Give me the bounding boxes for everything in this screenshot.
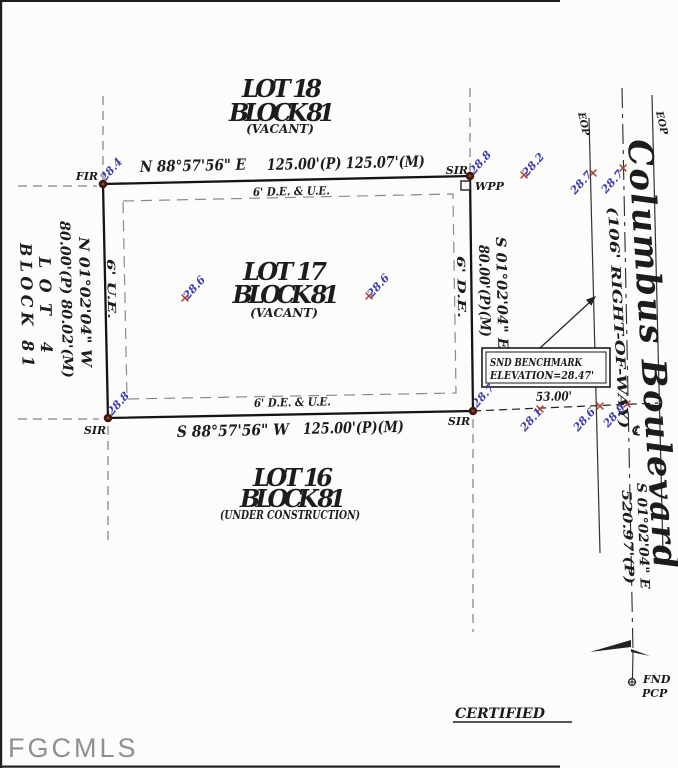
east-bearing: S 01°02'04" E	[492, 237, 510, 350]
monument-label-sir-ne: SIR	[446, 164, 468, 177]
east-distance: 80.00'(P)(M)	[475, 245, 493, 337]
lot4-block: BLOCK 81	[16, 242, 38, 367]
monument-label-fnd: FND	[642, 673, 671, 686]
certified-label: CERTIFIED	[455, 706, 545, 722]
station-tick-left	[590, 640, 631, 652]
west-boundary-label: N 01°02'04" W 80.00'(P) 80.02'(M)	[56, 221, 94, 378]
lot4-title: LOT 4	[35, 256, 56, 353]
plat-svg: SND BENCHMARK ELEVATION=28.47' LOT 18 BL…	[0, 0, 678, 768]
benchmark-title: SND BENCHMARK	[490, 355, 583, 369]
lot4-label: LOT 4 BLOCK 81	[16, 242, 56, 367]
lot18-label: LOT 18 BLOCK 81 (VACANT)	[228, 74, 335, 136]
lot17-status: (VACANT)	[250, 306, 318, 320]
monument-label-fir: FIR	[75, 170, 98, 183]
fnd-pcp-monument	[628, 678, 636, 686]
easement-label-left: 6' U.E.	[104, 259, 118, 320]
edge-of-pavement-left-line	[589, 118, 600, 553]
east-boundary-label: S 01°02'04" E 80.00'(P)(M)	[475, 237, 510, 350]
spot-elevation: 28.6	[570, 405, 598, 435]
easement-label-top: 6' D.E. & U.E.	[253, 183, 330, 199]
west-distance: 80.00'(P) 80.02'(M)	[56, 221, 75, 378]
benchmark-elevation: ELEVATION=28.47'	[489, 368, 594, 382]
eop-left-label: EOP	[575, 110, 591, 137]
lot18-status: (VACANT)	[246, 122, 314, 136]
north-boundary-label: N 88°57'56" E 125.00'(P) 125.07'(M)	[139, 152, 425, 176]
south-bearing: S 88°57'56" W	[177, 420, 291, 441]
north-distance: 125.00'(P) 125.07'(M)	[267, 152, 425, 174]
survey-plat-image: SND BENCHMARK ELEVATION=28.47' LOT 18 BL…	[0, 0, 678, 768]
lot16-label: LOT 16 BLOCK 81 (UNDER CONSTRUCTION)	[220, 463, 360, 522]
lot16-status: (UNDER CONSTRUCTION)	[220, 508, 360, 522]
offset-dimension-53ft: 53.00'	[536, 388, 572, 404]
north-bearing: N 88°57'56" E	[139, 155, 246, 176]
south-boundary-label: S 88°57'56" W 125.00'(P)(M)	[177, 417, 404, 441]
station-tick-right	[631, 649, 650, 656]
certified-block: CERTIFIED	[453, 706, 572, 722]
easement-label-right: 6' D.E.	[454, 256, 468, 319]
lot17-block: BLOCK 81	[232, 280, 340, 309]
monument-label-pcp: PCP	[641, 687, 668, 700]
monument-label-sir-sw: SIR	[84, 424, 106, 437]
monument-label-sir-se: SIR	[448, 415, 470, 428]
eop-right-label: EOP	[653, 109, 669, 136]
monument-label-wpp: WPP	[475, 180, 505, 193]
lot17-label: LOT 17 BLOCK 81 (VACANT)	[232, 257, 340, 320]
benchmark-arrow	[540, 302, 590, 348]
west-bearing: N 01°02'04" W	[75, 236, 94, 369]
easement-label-bottom: 6' D.E. & U.E.	[254, 394, 331, 410]
road-centerline-tail	[633, 652, 634, 678]
wood-power-pole-symbol	[461, 181, 470, 190]
south-distance: 125.00'(P)(M)	[303, 417, 404, 438]
centerline-distance: 520.97'(P)	[618, 490, 636, 584]
fgcmls-watermark: FGCMLS	[8, 733, 139, 763]
